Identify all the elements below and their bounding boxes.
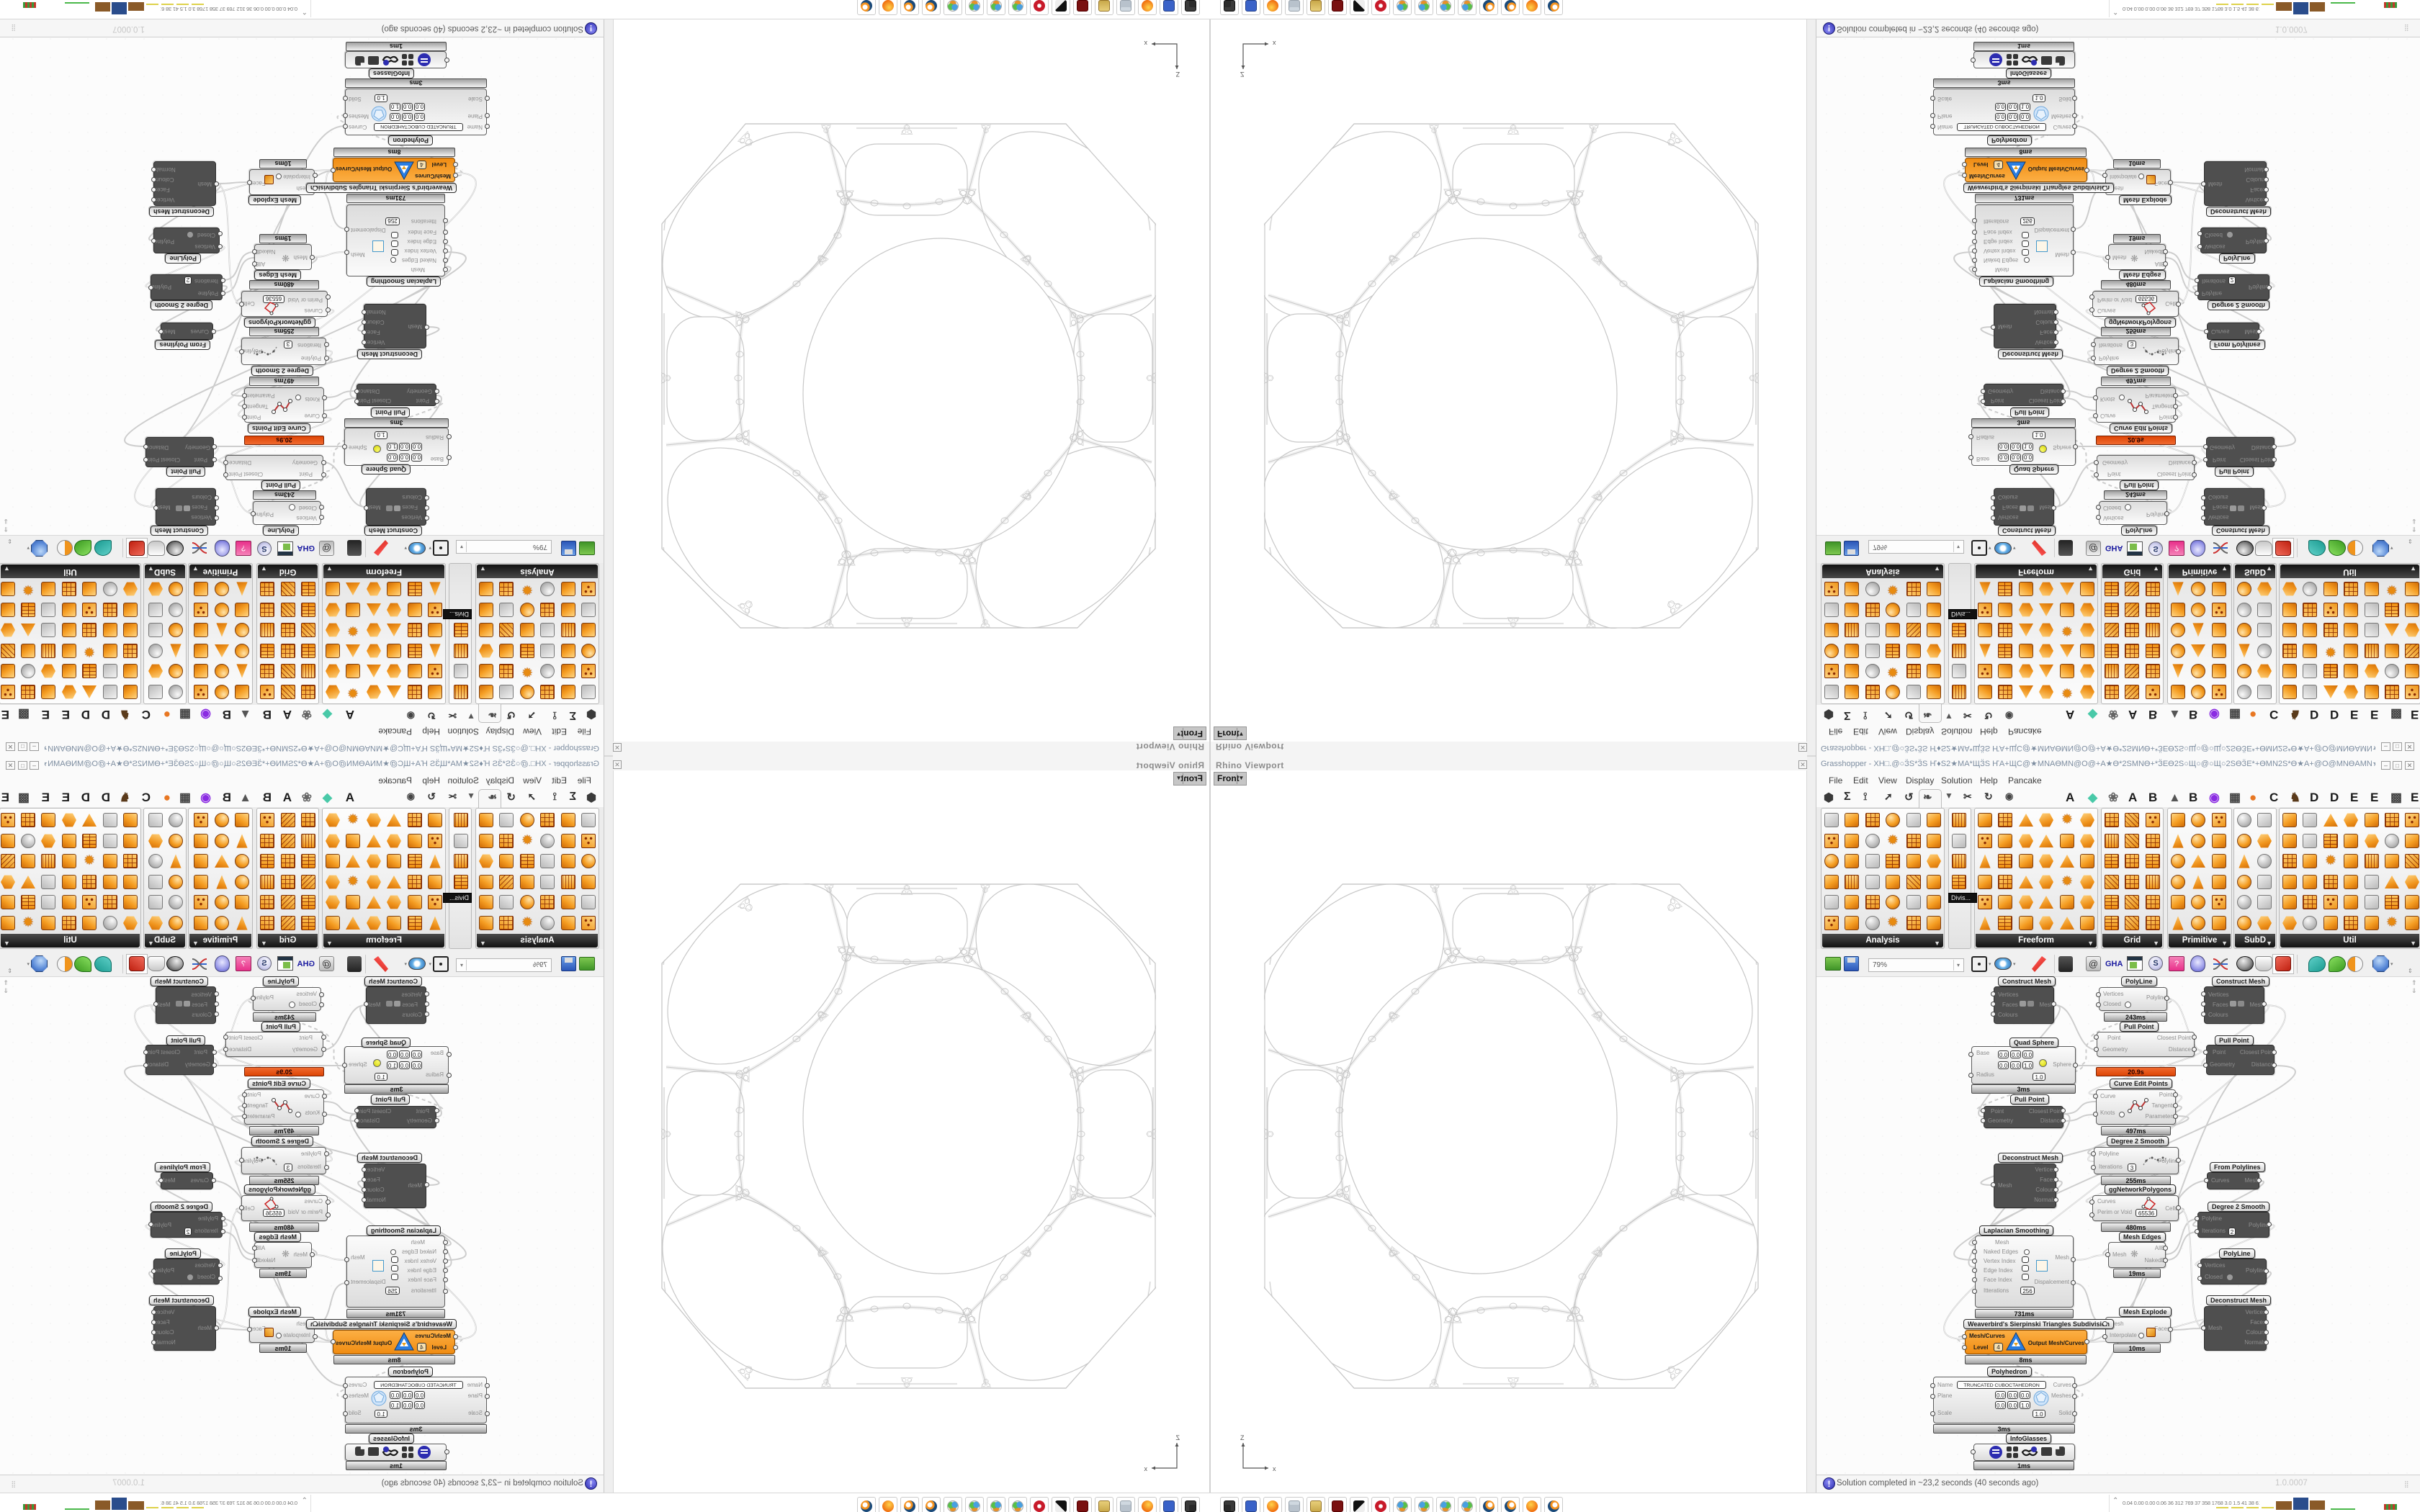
svg-text:x: x bbox=[1144, 40, 1147, 47]
svg-text:Z: Z bbox=[1175, 1434, 1180, 1441]
svg-text:Z: Z bbox=[1175, 71, 1180, 78]
svg-text:x: x bbox=[1273, 40, 1276, 47]
svg-text:Z: Z bbox=[1240, 1434, 1245, 1441]
svg-text:Z: Z bbox=[1240, 71, 1245, 78]
svg-text:x: x bbox=[1273, 1465, 1276, 1472]
svg-text:x: x bbox=[1144, 1465, 1147, 1472]
